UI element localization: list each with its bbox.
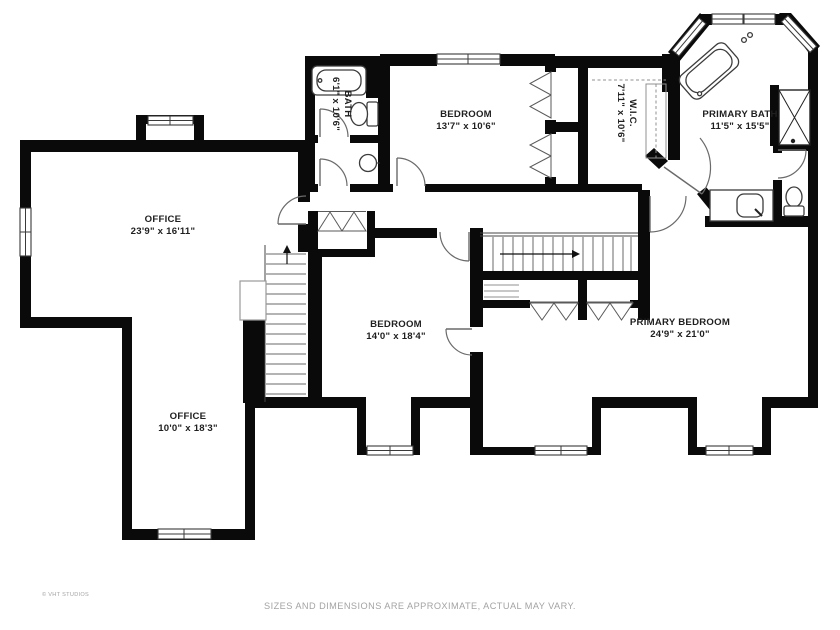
- bifold-bedroom-top-closet-1: [530, 72, 551, 118]
- room-dimensions: 24'9" x 21'0": [650, 329, 710, 340]
- room-dimensions: 6'1" x 10'6": [330, 77, 341, 131]
- room-dimensions: 11'5" x 15'5": [710, 121, 769, 132]
- sink: [360, 155, 381, 172]
- window-bedroom-dormer: [367, 446, 413, 455]
- room-label-walk-in-closet: W.I.C.7'11" x 10'6": [615, 83, 638, 142]
- tub-faucet: [742, 33, 753, 43]
- copyright-text: © VHT STUDIOS: [42, 591, 89, 598]
- room-dimensions: 13'7" x 10'6": [436, 121, 496, 132]
- room-label-bedroom-middle: BEDROOM14'0" x 18'4": [366, 319, 426, 342]
- door-bedroom-connecting: [446, 329, 472, 355]
- bifold-primary-closet-left: [530, 302, 578, 320]
- window-office-lower: [158, 529, 211, 539]
- window-primary-dormer-right: [706, 446, 753, 455]
- room-name: PRIMARY BATH: [702, 109, 777, 120]
- door-bath-sink-room: [320, 159, 347, 186]
- room-label-office-upper: OFFICE23'9" x 16'11": [131, 214, 196, 237]
- bifold-hall-closet: [318, 212, 366, 232]
- stair-arrow-icon: [572, 250, 580, 258]
- window-primary-bath-angled-left: [672, 18, 706, 56]
- door-bedroom-top: [397, 158, 425, 186]
- door-bedroom-middle: [440, 232, 469, 261]
- room-dimensions: 23'9" x 16'11": [131, 226, 196, 237]
- toilet: [351, 102, 379, 126]
- room-label-bedroom-top: BEDROOM13'7" x 10'6": [436, 109, 496, 132]
- door-primary-bedroom: [650, 196, 686, 232]
- room-label-office-lower: OFFICE10'0" x 18'3": [158, 411, 218, 434]
- room-name: W.I.C.: [627, 99, 638, 127]
- bifold-bedroom-top-closet-2: [530, 134, 551, 178]
- room-dimensions: 14'0" x 18'4": [366, 331, 426, 342]
- stair-landing: [240, 281, 266, 320]
- vanity-sink: [710, 190, 773, 221]
- disclaimer-text: SIZES AND DIMENSIONS ARE APPROXIMATE, AC…: [264, 601, 576, 611]
- linen-shelves: [484, 285, 519, 297]
- bifold-primary-closet-right: [587, 302, 633, 320]
- room-label-primary-bedroom: PRIMARY BEDROOM24'9" x 21'0": [630, 317, 730, 340]
- stairs-main: [480, 233, 638, 271]
- shower: [779, 90, 810, 145]
- floor-plan-drawing: OFFICE23'9" x 16'11"OFFICE10'0" x 18'3"B…: [0, 0, 840, 630]
- room-name: OFFICE: [145, 214, 182, 225]
- room-label-primary-bath: PRIMARY BATH11'5" x 15'5": [702, 109, 777, 132]
- room-name: BEDROOM: [370, 319, 422, 330]
- door-primary-toilet-room: [778, 150, 806, 178]
- floor-plan-page: OFFICE23'9" x 16'11"OFFICE10'0" x 18'3"B…: [0, 0, 840, 630]
- window-primary-bath-angled-right: [781, 16, 816, 53]
- room-name: PRIMARY BEDROOM: [630, 317, 730, 328]
- window-bedroom-top: [437, 54, 500, 64]
- window-office-left: [20, 208, 31, 256]
- primary-toilet: [784, 187, 804, 216]
- window-primary-dormer-left: [535, 446, 587, 455]
- room-dimensions: 10'0" x 18'3": [158, 423, 218, 434]
- room-dimensions: 7'11" x 10'6": [615, 83, 626, 142]
- stair-arrow-icon: [283, 245, 291, 253]
- window-primary-bath-top: [712, 14, 775, 24]
- room-name: BATH: [342, 91, 353, 118]
- room-name: OFFICE: [170, 411, 207, 422]
- window-office-dormer: [148, 116, 193, 125]
- room-name: BEDROOM: [440, 109, 492, 120]
- room-labels: OFFICE23'9" x 16'11"OFFICE10'0" x 18'3"B…: [131, 77, 778, 434]
